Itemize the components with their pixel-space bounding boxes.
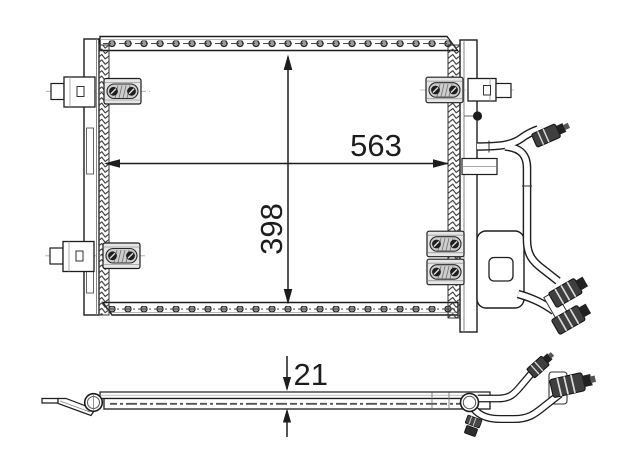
end-tank-right xyxy=(461,394,479,412)
dimension-width: 563 xyxy=(104,128,449,168)
arrowhead-right xyxy=(433,159,449,168)
arrowhead-down xyxy=(283,377,291,391)
refrigerant-pipes-side xyxy=(474,374,560,419)
pipe-fitting-mid-right xyxy=(531,119,572,148)
core-profile xyxy=(100,392,490,409)
technical-drawing-page: 563 398 xyxy=(0,0,617,455)
arrowhead-up xyxy=(284,55,293,71)
receiver-bracket-plate xyxy=(477,231,524,308)
bottom-rail xyxy=(103,303,458,316)
arrowhead-up xyxy=(283,409,291,423)
pipe-clamp xyxy=(462,159,497,175)
side-view: 21 xyxy=(42,349,597,437)
dimension-width-label: 563 xyxy=(350,128,402,163)
drain-fitting xyxy=(462,415,482,437)
mounting-bracket-bottom-right-upper xyxy=(427,231,464,257)
mounting-bracket-top-right xyxy=(426,77,463,103)
mounting-block-top-right xyxy=(468,79,511,102)
mounting-bracket-bottom-right-lower xyxy=(427,259,464,285)
dimension-thickness-label: 21 xyxy=(294,357,328,392)
end-tank-left xyxy=(85,394,103,412)
condenser-technical-drawing: 563 398 xyxy=(0,0,617,455)
top-rail xyxy=(100,37,458,51)
stud-dot xyxy=(473,111,482,120)
dimension-height: 398 xyxy=(254,55,292,305)
dimension-height-label: 398 xyxy=(254,203,289,255)
front-view: 563 398 xyxy=(45,37,593,335)
